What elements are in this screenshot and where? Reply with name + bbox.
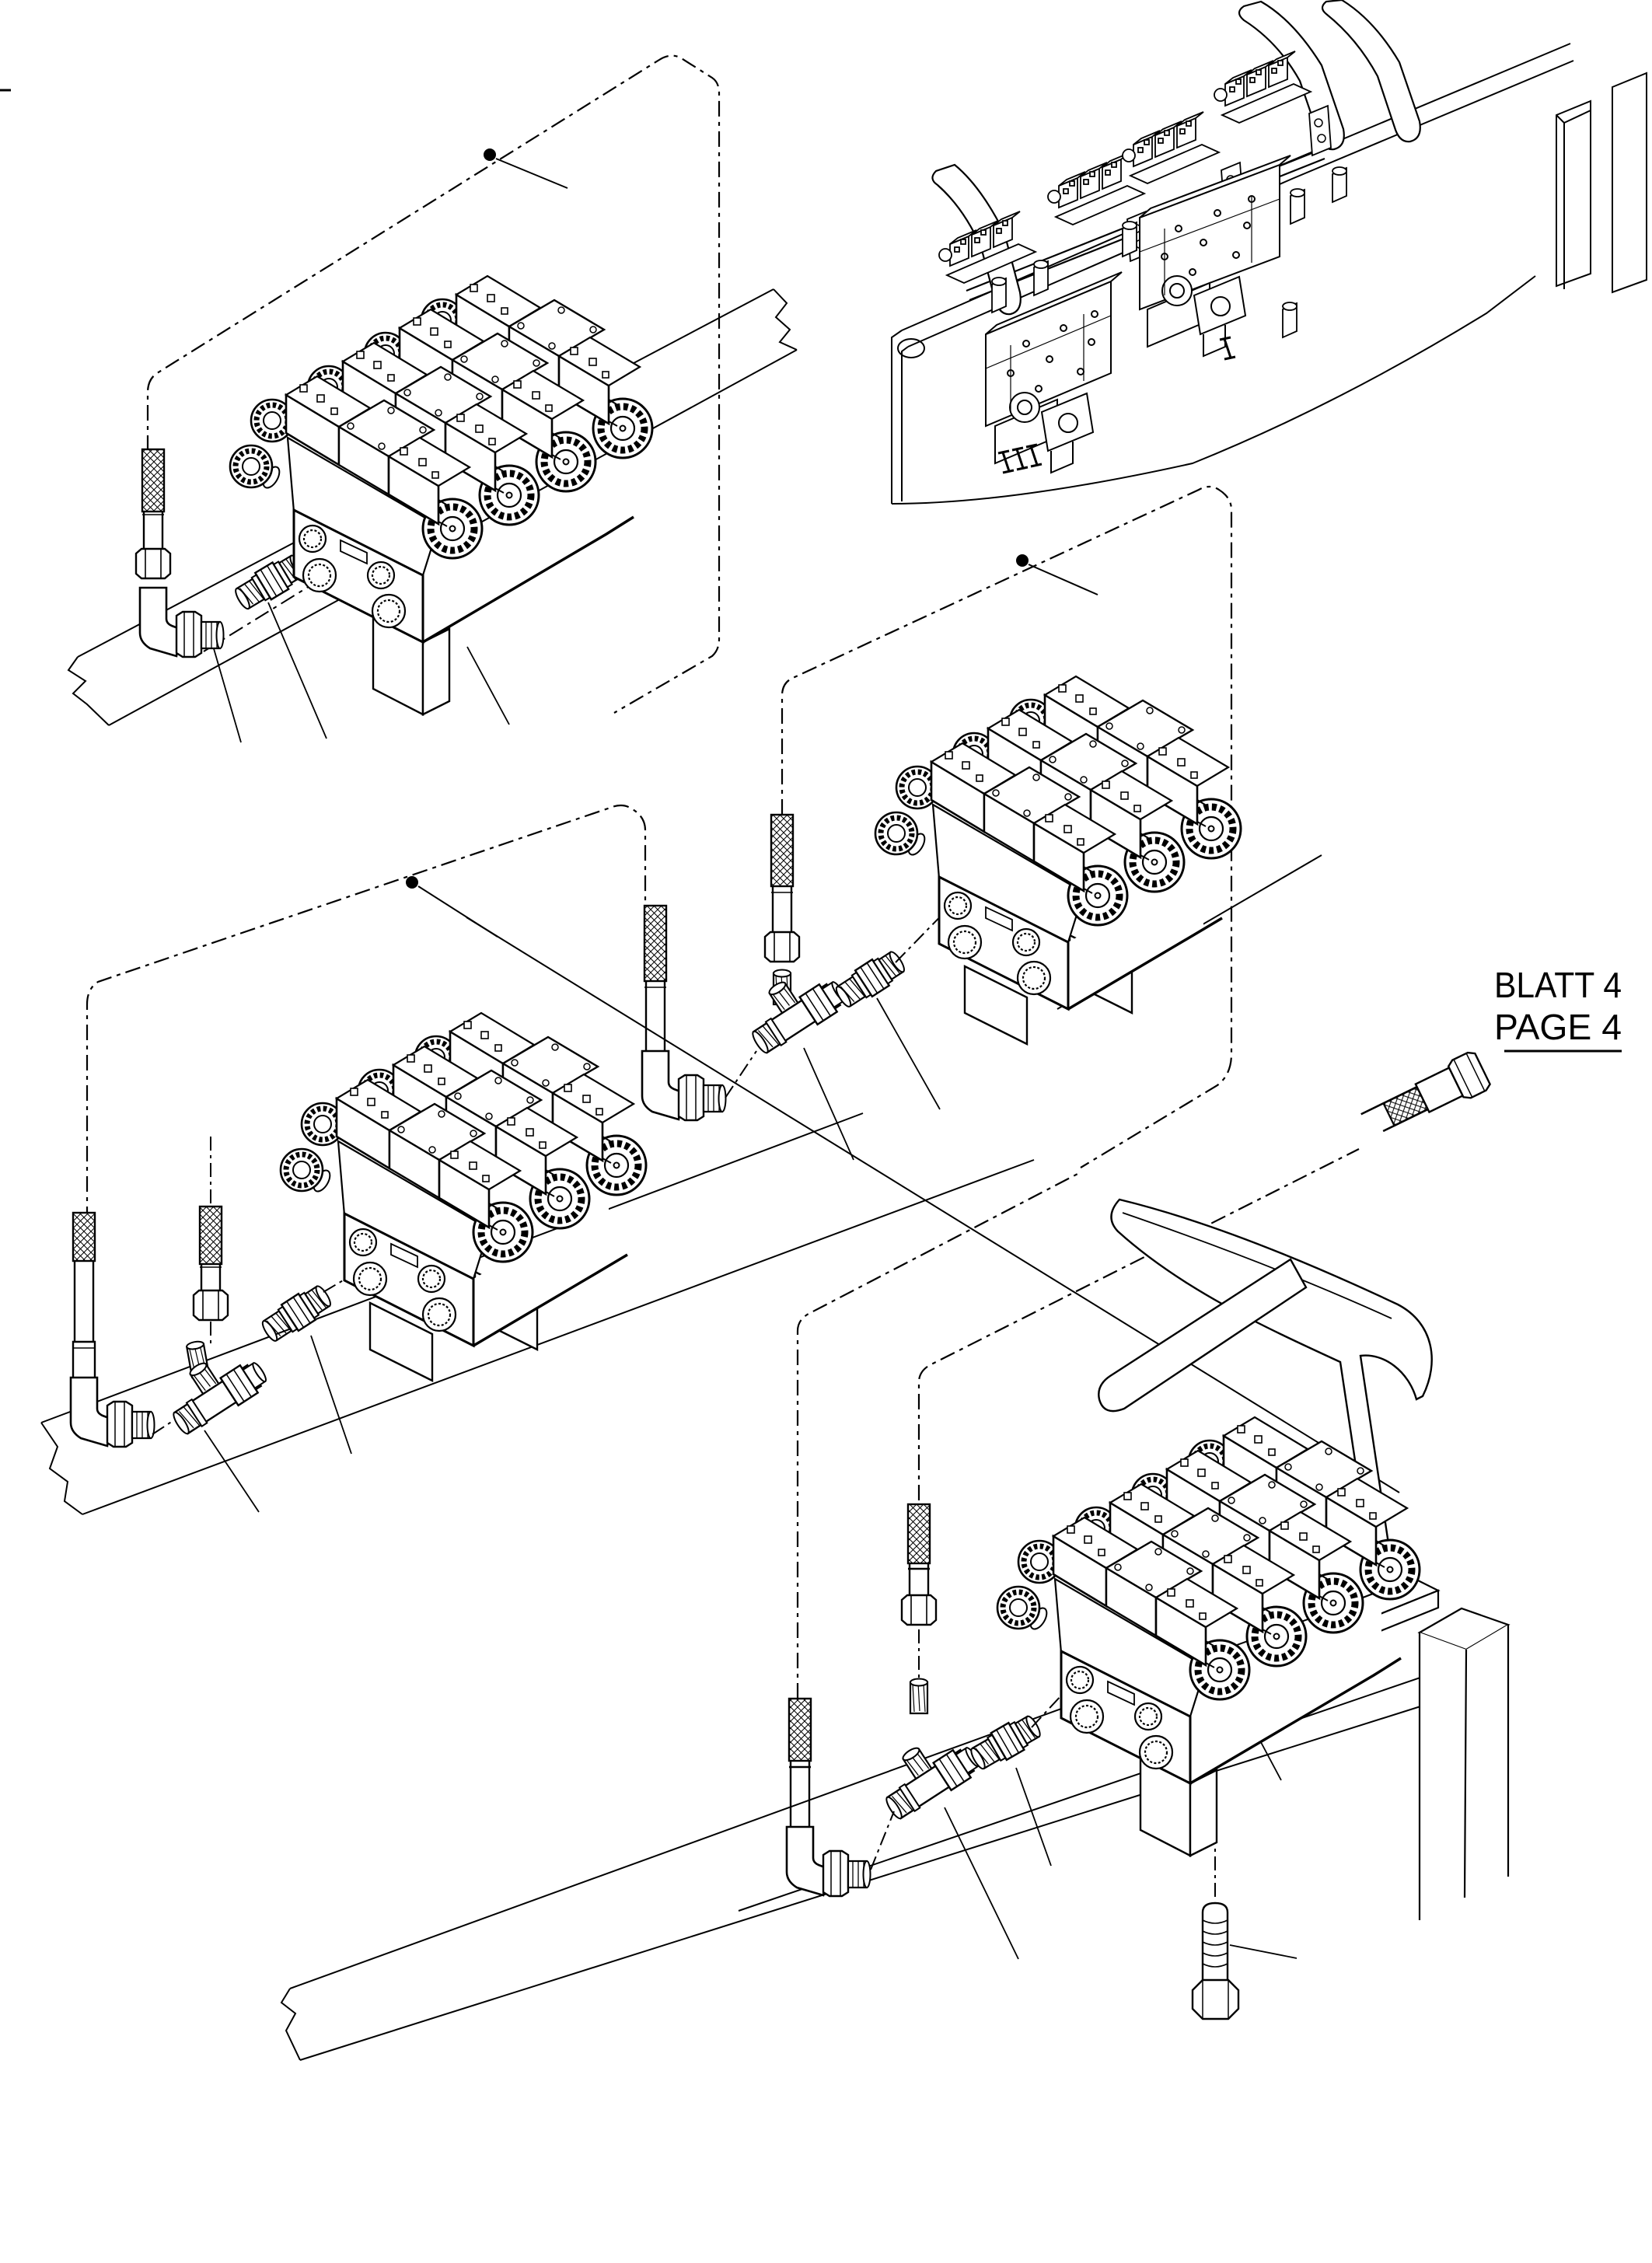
svg-text:PAGE 4: PAGE 4 xyxy=(1494,1007,1622,1047)
svg-text:BLATT 4: BLATT 4 xyxy=(1494,965,1622,1005)
